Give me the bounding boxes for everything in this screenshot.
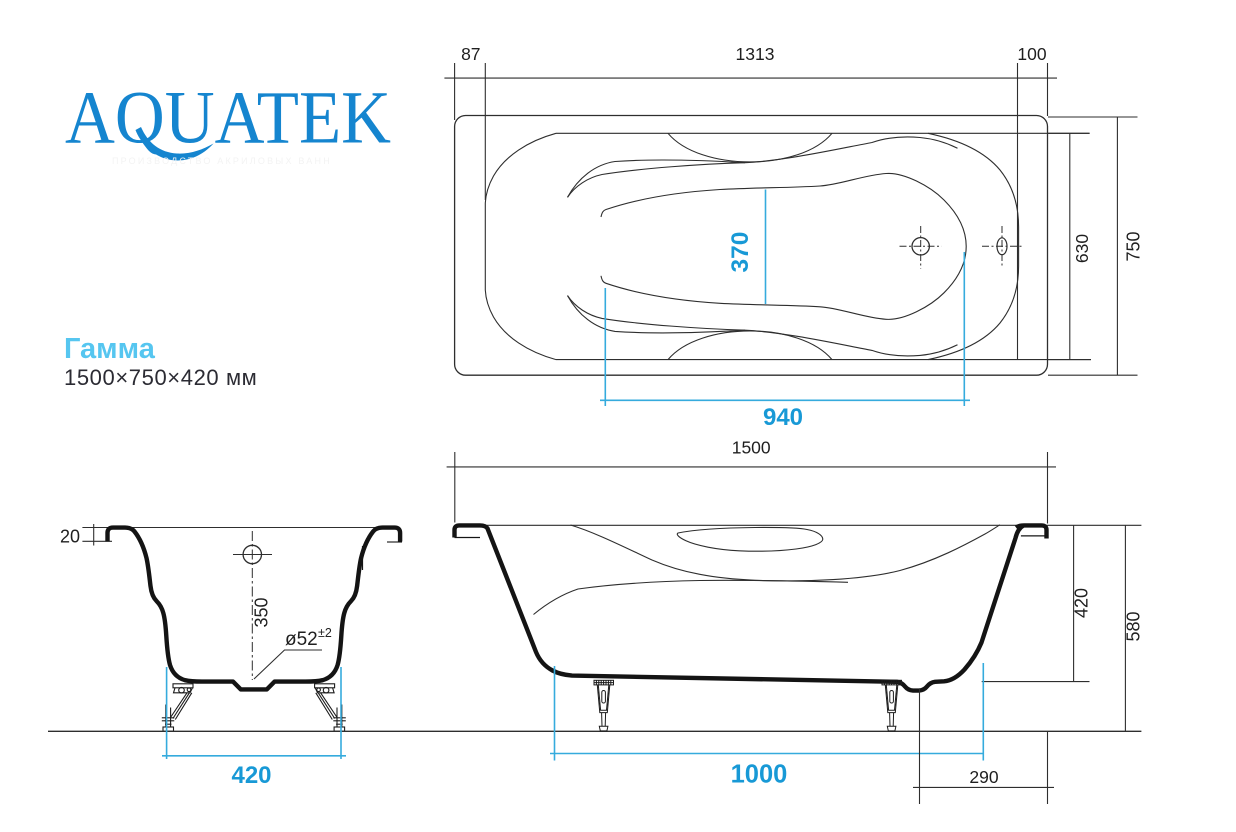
svg-text:420: 420: [1072, 588, 1092, 618]
svg-text:750: 750: [1124, 231, 1144, 261]
svg-text:580: 580: [1124, 611, 1144, 641]
svg-text:20: 20: [60, 527, 80, 547]
svg-text:Гамма: Гамма: [64, 333, 156, 365]
svg-text:370: 370: [727, 232, 754, 273]
svg-text:ø52: ø52: [285, 629, 318, 650]
svg-text:420: 420: [231, 762, 271, 789]
svg-text:290: 290: [969, 767, 998, 787]
svg-text:1000: 1000: [731, 761, 788, 789]
svg-text:350: 350: [252, 597, 272, 627]
svg-text:±2: ±2: [318, 626, 332, 640]
svg-text:100: 100: [1017, 44, 1046, 64]
svg-text:87: 87: [461, 44, 480, 64]
svg-text:1313: 1313: [736, 44, 775, 64]
svg-text:AQUATEK: AQUATEK: [65, 77, 391, 160]
svg-text:1500×750×420 мм: 1500×750×420 мм: [64, 365, 257, 390]
svg-text:940: 940: [763, 404, 803, 431]
svg-text:630: 630: [1072, 234, 1092, 263]
svg-text:1500: 1500: [732, 438, 771, 458]
svg-text:ПРОИЗВОДСТВО АКРИЛОВЫХ ВАНН: ПРОИЗВОДСТВО АКРИЛОВЫХ ВАНН: [112, 156, 332, 166]
